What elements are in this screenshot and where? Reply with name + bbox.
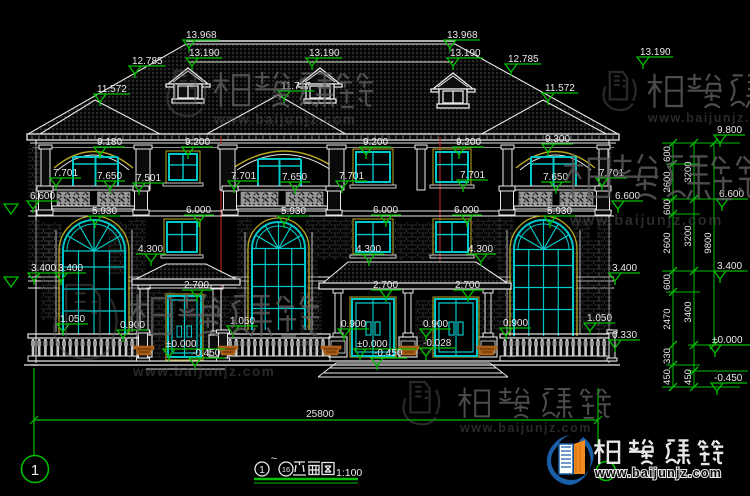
svg-text:2.700: 2.700 xyxy=(373,280,398,291)
svg-text:1: 1 xyxy=(259,465,265,476)
svg-text:6.600: 6.600 xyxy=(30,191,55,202)
svg-text:www.baijunjz.com: www.baijunjz.com xyxy=(459,421,592,435)
svg-text:-0.450: -0.450 xyxy=(714,373,743,384)
svg-text:13.190: 13.190 xyxy=(450,48,481,59)
svg-text:7.650: 7.650 xyxy=(282,172,307,183)
svg-text:450: 450 xyxy=(683,369,694,385)
svg-text:-0.450: -0.450 xyxy=(374,348,403,359)
svg-text:12.785: 12.785 xyxy=(132,56,163,67)
svg-text:600: 600 xyxy=(662,274,673,290)
svg-text:1: 1 xyxy=(31,462,39,479)
svg-text:7.701: 7.701 xyxy=(460,170,485,181)
svg-text:12.785: 12.785 xyxy=(508,54,539,65)
svg-text:1.050: 1.050 xyxy=(587,313,612,324)
svg-text:7.701: 7.701 xyxy=(339,171,364,182)
svg-text:11.572: 11.572 xyxy=(545,83,575,94)
svg-text:-0.028: -0.028 xyxy=(423,338,452,349)
svg-text:7.650: 7.650 xyxy=(97,171,122,182)
svg-text:13.968: 13.968 xyxy=(447,30,478,41)
svg-text:4.300: 4.300 xyxy=(138,244,163,255)
svg-text:7.501: 7.501 xyxy=(136,173,161,184)
svg-text:-0.450: -0.450 xyxy=(192,348,221,359)
svg-text:1.050: 1.050 xyxy=(60,314,85,325)
svg-text:6.000: 6.000 xyxy=(373,205,398,216)
svg-text:4.300: 4.300 xyxy=(356,244,381,255)
svg-text:3.400: 3.400 xyxy=(31,263,56,274)
svg-text:2600: 2600 xyxy=(662,232,673,253)
svg-text:9.200: 9.200 xyxy=(185,137,210,148)
svg-text:6.000: 6.000 xyxy=(454,205,479,216)
svg-text:13.190: 13.190 xyxy=(640,47,671,58)
svg-text:0.900: 0.900 xyxy=(341,319,366,330)
svg-text:16: 16 xyxy=(282,465,290,474)
svg-text:5.930: 5.930 xyxy=(281,206,306,217)
svg-text:9.800: 9.800 xyxy=(717,125,742,136)
svg-text:13.190: 13.190 xyxy=(309,48,340,59)
svg-text:4.300: 4.300 xyxy=(468,244,493,255)
svg-text:7.701: 7.701 xyxy=(231,171,256,182)
svg-text:9.180: 9.180 xyxy=(97,137,122,148)
svg-text:9.200: 9.200 xyxy=(456,137,481,148)
svg-text:13.968: 13.968 xyxy=(186,30,217,41)
svg-text:www.baijunjz.com: www.baijunjz.com xyxy=(594,466,722,480)
svg-text:www.baijunjz.com: www.baijunjz.com xyxy=(213,112,356,127)
svg-text:www.baijunjz.com: www.baijunjz.com xyxy=(569,213,723,229)
svg-text:330: 330 xyxy=(662,348,673,364)
svg-text:±0.000: ±0.000 xyxy=(712,335,743,346)
svg-text:6.000: 6.000 xyxy=(186,205,211,216)
svg-text:2470: 2470 xyxy=(662,308,673,329)
svg-text:7.701: 7.701 xyxy=(53,168,78,179)
svg-text:600: 600 xyxy=(662,146,673,162)
svg-text:0.900: 0.900 xyxy=(120,320,145,331)
svg-text:2.700: 2.700 xyxy=(184,280,209,291)
svg-text:6.600: 6.600 xyxy=(615,191,640,202)
svg-text:5.930: 5.930 xyxy=(547,206,572,217)
svg-text:25800: 25800 xyxy=(306,409,334,420)
svg-text:3.400: 3.400 xyxy=(58,263,83,274)
svg-text:3400: 3400 xyxy=(683,301,694,322)
svg-text:3.400: 3.400 xyxy=(717,261,742,272)
svg-text:13.190: 13.190 xyxy=(189,48,220,59)
svg-text:9800: 9800 xyxy=(703,232,714,253)
svg-text:1:100: 1:100 xyxy=(336,467,362,479)
svg-text:2.700: 2.700 xyxy=(455,280,480,291)
svg-text:~: ~ xyxy=(271,453,277,465)
svg-text:0.900: 0.900 xyxy=(423,319,448,330)
svg-text:www.baijunjz.com: www.baijunjz.com xyxy=(132,364,275,379)
svg-text:7.650: 7.650 xyxy=(543,172,568,183)
svg-text:3.400: 3.400 xyxy=(612,263,637,274)
svg-text:450: 450 xyxy=(662,369,673,385)
svg-text:www.baijunjz.com: www.baijunjz.com xyxy=(647,111,750,125)
svg-text:0.900: 0.900 xyxy=(503,318,528,329)
svg-text:0.330: 0.330 xyxy=(612,330,637,341)
svg-text:9.300: 9.300 xyxy=(545,134,570,145)
svg-text:5.930: 5.930 xyxy=(92,206,117,217)
svg-text:11.572: 11.572 xyxy=(97,84,127,95)
svg-text:9.200: 9.200 xyxy=(363,137,388,148)
